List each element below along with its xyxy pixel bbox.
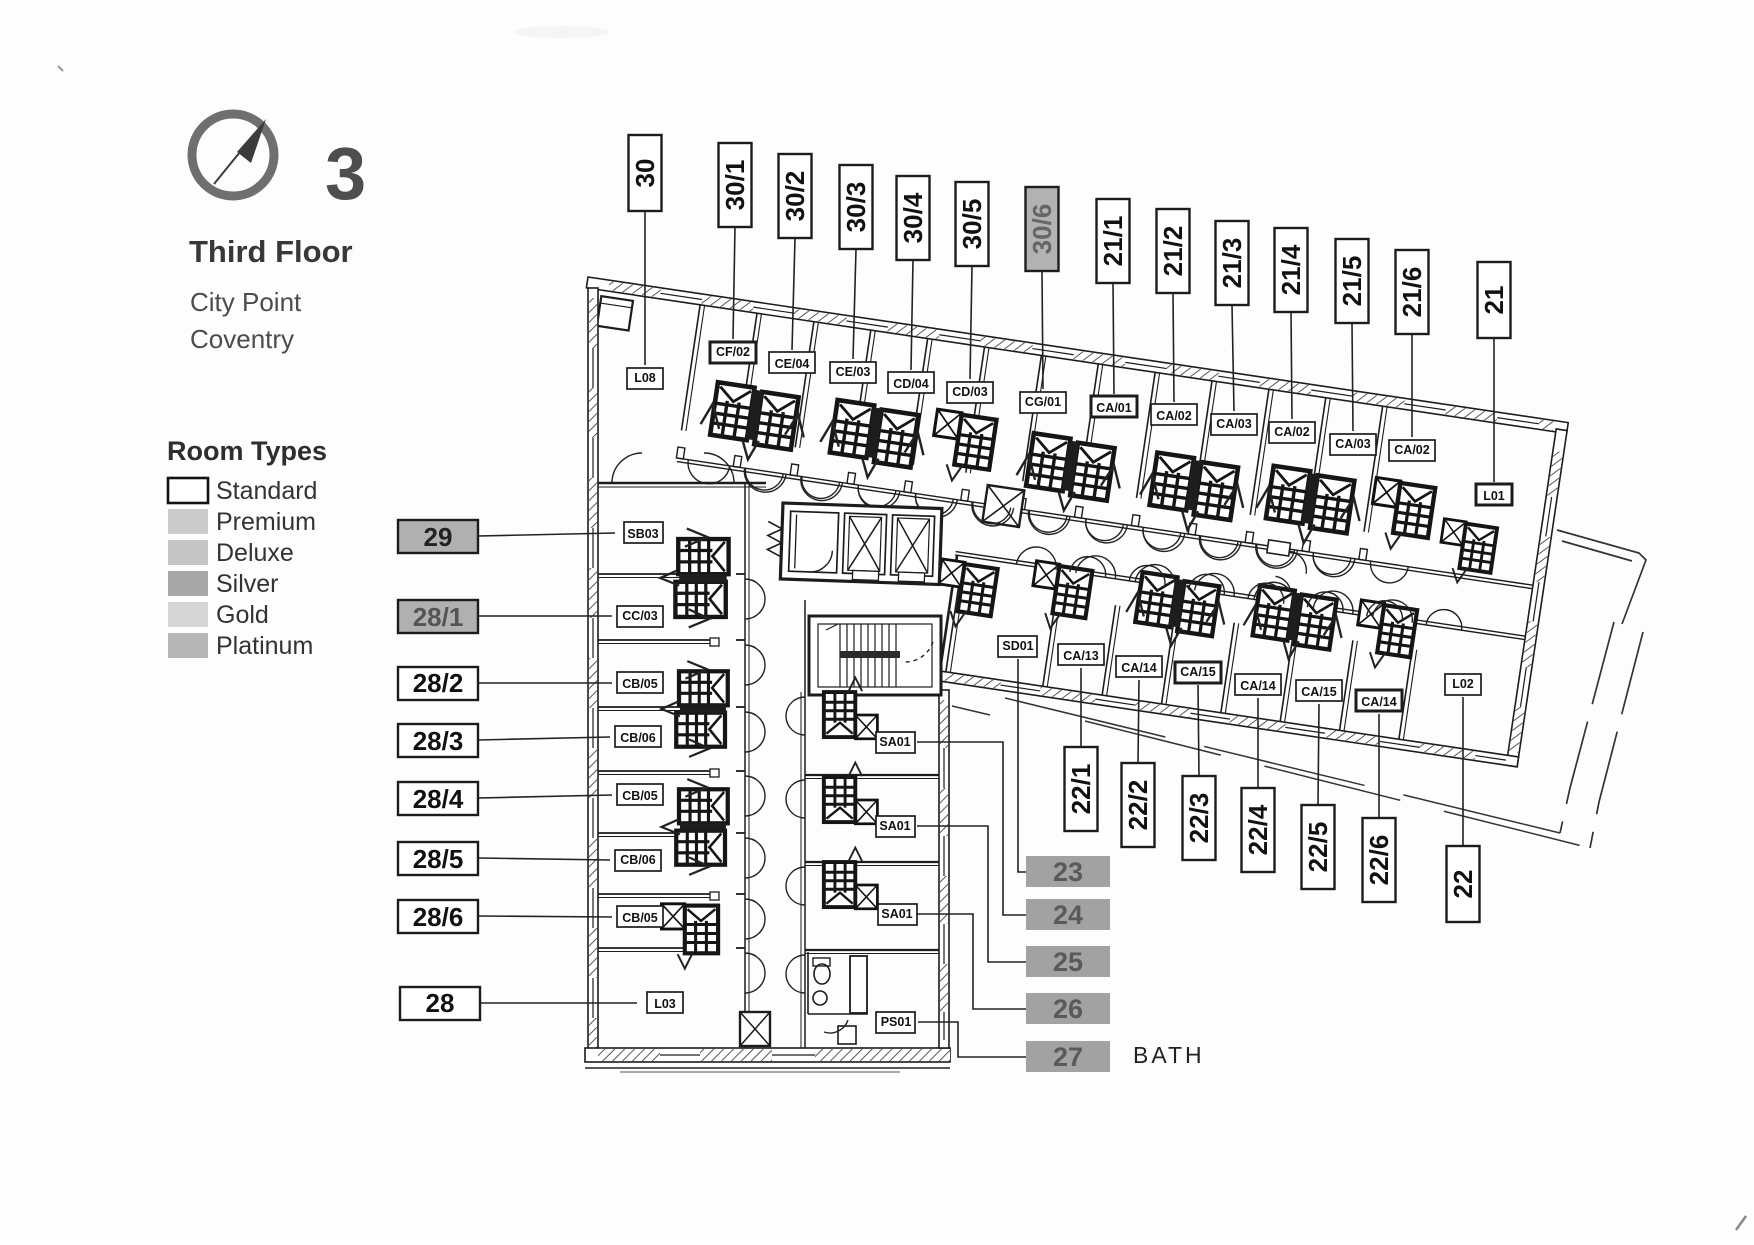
svg-text:CA/02: CA/02: [1394, 443, 1429, 457]
svg-text:Silver: Silver: [216, 570, 279, 598]
svg-text:25: 25: [1053, 947, 1083, 977]
svg-text:CB/06: CB/06: [620, 853, 655, 867]
svg-text:CA/14: CA/14: [1361, 695, 1396, 709]
svg-text:CD/04: CD/04: [893, 377, 928, 391]
svg-text:City Point: City Point: [190, 287, 302, 317]
svg-text:Platinum: Platinum: [216, 632, 313, 660]
svg-text:Room Types: Room Types: [167, 436, 327, 466]
svg-text:22: 22: [1448, 870, 1478, 899]
svg-text:30/6: 30/6: [1027, 204, 1057, 255]
svg-text:BATH: BATH: [1133, 1042, 1205, 1068]
svg-text:SB03: SB03: [627, 527, 658, 541]
svg-text:CA/15: CA/15: [1301, 685, 1336, 699]
svg-text:SD01: SD01: [1002, 639, 1033, 653]
svg-text:30/3: 30/3: [841, 182, 871, 233]
svg-text:26: 26: [1053, 994, 1083, 1024]
svg-text:24: 24: [1053, 900, 1083, 930]
svg-text:CA/13: CA/13: [1063, 649, 1098, 663]
svg-text:L01: L01: [1483, 489, 1505, 503]
svg-text:Deluxe: Deluxe: [216, 539, 294, 567]
svg-text:30/5: 30/5: [957, 199, 987, 250]
svg-text:Coventry: Coventry: [190, 324, 294, 354]
svg-text:28/5: 28/5: [413, 844, 464, 874]
svg-text:28/4: 28/4: [413, 784, 464, 814]
svg-text:30/1: 30/1: [720, 160, 750, 211]
svg-text:CD/03: CD/03: [952, 385, 987, 399]
svg-text:CE/03: CE/03: [836, 365, 871, 379]
svg-text:L02: L02: [1452, 677, 1474, 691]
svg-text:CB/05: CB/05: [622, 911, 657, 925]
svg-text:30: 30: [630, 159, 660, 188]
svg-text:CA/15: CA/15: [1180, 665, 1215, 679]
svg-text:Standard: Standard: [216, 477, 317, 505]
svg-text:CA/03: CA/03: [1335, 437, 1370, 451]
svg-text:28/1: 28/1: [413, 602, 464, 632]
svg-text:22/4: 22/4: [1243, 804, 1273, 855]
svg-text:PS01: PS01: [881, 1015, 912, 1029]
svg-text:21: 21: [1479, 286, 1509, 315]
svg-text:CF/02: CF/02: [716, 345, 750, 359]
svg-text:28: 28: [426, 988, 455, 1018]
svg-text:21/3: 21/3: [1217, 238, 1247, 289]
svg-text:Gold: Gold: [216, 601, 269, 629]
svg-text:CA/14: CA/14: [1240, 679, 1275, 693]
svg-text:SA01: SA01: [881, 907, 912, 921]
svg-text:23: 23: [1053, 857, 1083, 887]
svg-text:Premium: Premium: [216, 508, 316, 536]
svg-text:21/6: 21/6: [1397, 267, 1427, 318]
svg-text:29: 29: [424, 522, 453, 552]
svg-text:28/2: 28/2: [413, 668, 464, 698]
svg-text:CA/02: CA/02: [1156, 409, 1191, 423]
svg-text:CB/06: CB/06: [620, 731, 655, 745]
svg-text:Third Floor: Third Floor: [189, 234, 353, 269]
svg-text:21/5: 21/5: [1337, 256, 1367, 307]
svg-text:22/3: 22/3: [1184, 793, 1214, 844]
svg-text:22/2: 22/2: [1123, 780, 1153, 831]
svg-text:28/6: 28/6: [413, 902, 464, 932]
svg-text:CA/03: CA/03: [1216, 417, 1251, 431]
svg-text:CB/05: CB/05: [622, 789, 657, 803]
svg-text:SA01: SA01: [879, 735, 910, 749]
svg-text:28/3: 28/3: [413, 726, 464, 756]
svg-text:CC/03: CC/03: [622, 609, 657, 623]
svg-text:L08: L08: [634, 371, 656, 385]
svg-text:21/2: 21/2: [1158, 226, 1188, 277]
svg-text:22/1: 22/1: [1066, 764, 1096, 815]
svg-text:21/4: 21/4: [1276, 244, 1306, 295]
svg-text:CB/05: CB/05: [622, 677, 657, 691]
svg-text:22/5: 22/5: [1303, 822, 1333, 873]
svg-text:21/1: 21/1: [1098, 216, 1128, 267]
svg-text:22/6: 22/6: [1364, 835, 1394, 886]
svg-text:CE/04: CE/04: [775, 357, 810, 371]
svg-text:30/4: 30/4: [898, 192, 928, 243]
svg-text:CG/01: CG/01: [1025, 395, 1061, 409]
svg-text:CA/01: CA/01: [1096, 401, 1131, 415]
svg-text:3: 3: [325, 132, 366, 215]
svg-text:30/2: 30/2: [780, 171, 810, 222]
svg-text:SA01: SA01: [879, 819, 910, 833]
svg-text:CA/02: CA/02: [1274, 425, 1309, 439]
svg-text:CA/14: CA/14: [1121, 661, 1156, 675]
svg-text:L03: L03: [654, 997, 676, 1011]
svg-text:27: 27: [1053, 1042, 1083, 1072]
